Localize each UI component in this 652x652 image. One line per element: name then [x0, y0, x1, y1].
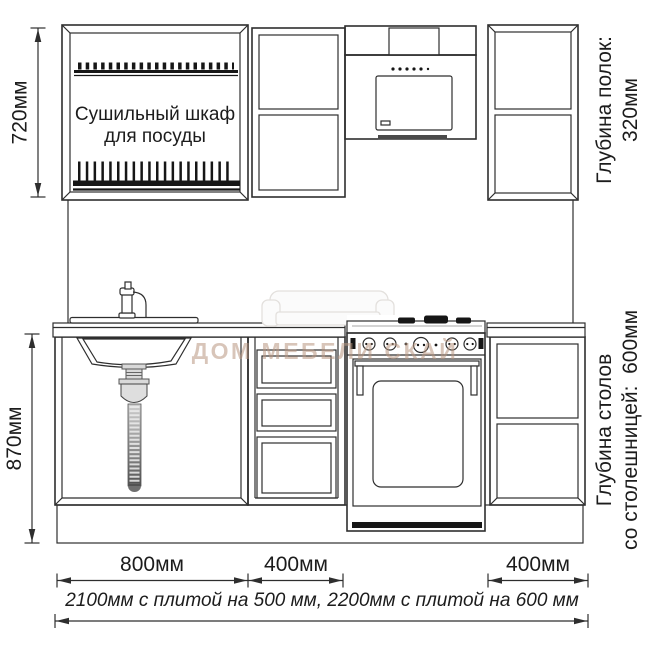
- plinth: [57, 505, 583, 543]
- dim-upper-height-label: 720мм: [9, 81, 32, 145]
- base-cabinet-right: [490, 337, 585, 505]
- right-cabinet-box: [490, 337, 585, 505]
- label-shelf-depth: Глубина полок: 320мм: [593, 36, 642, 184]
- label-counter-depth: Глубина столов со столешницей: 600мм: [593, 310, 642, 550]
- burner: [456, 318, 471, 324]
- drying-cabinet-label-line2: для посуды: [104, 126, 206, 147]
- siphon-pipe: [128, 404, 141, 486]
- counter-depth-line1: Глубина столов: [593, 354, 616, 506]
- dim-width-400-drawers-label: 400мм: [264, 553, 328, 576]
- hood-front-panel: [376, 76, 452, 130]
- burner: [398, 318, 415, 324]
- right-cabinet-shelf-bottom: [497, 424, 578, 498]
- dim-upper-height: 720мм: [9, 28, 46, 197]
- drying-rack-bottom: [73, 171, 240, 190]
- hood-logo: [381, 121, 390, 125]
- stove-base-strip: [352, 522, 482, 528]
- dim-bottom-widths: 800мм 400мм 400мм: [57, 553, 588, 588]
- upper-cabinet-middle: [252, 28, 345, 197]
- countertop-right: [487, 323, 585, 337]
- hood-duct-box: [389, 28, 439, 55]
- siphon: [119, 364, 149, 492]
- burner: [424, 316, 448, 324]
- drawer-3: [257, 437, 336, 498]
- upper-cabinet-right: [488, 25, 578, 200]
- drying-rack-top: [74, 66, 238, 76]
- siphon-bulb: [121, 384, 147, 403]
- hood-cabinet: [345, 26, 476, 140]
- dim-lower-height: 870мм: [3, 334, 40, 543]
- dim-width-400-right-label: 400мм: [506, 553, 570, 576]
- right-cabinet-shelf-top: [497, 344, 578, 418]
- drying-cabinet-label-line1: Сушильный шкаф: [75, 104, 235, 125]
- hood-bottom-strip: [378, 135, 447, 140]
- stove-knob: [464, 338, 476, 350]
- hood-body: [345, 55, 476, 139]
- kitchen-technical-drawing: Сушильный шкаф для посуды: [0, 0, 652, 652]
- dim-total-width-label: 2100мм с плитой на 500 мм, 2200мм с плит…: [64, 590, 579, 611]
- range-hood: [345, 55, 476, 140]
- dim-width-800-label: 800мм: [120, 553, 184, 576]
- plinth-face: [57, 505, 583, 543]
- dim-lower-height-label: 870мм: [3, 407, 26, 471]
- sink-bowl: [77, 338, 191, 368]
- drawing-svg: Сушильный шкаф для посуды: [0, 0, 652, 652]
- faucet: [119, 282, 146, 318]
- shelf-depth-line1: Глубина полок:: [593, 36, 616, 184]
- shelf-depth-line2: 320мм: [619, 78, 642, 142]
- watermark-text: ДОМ МЕБЕЛИ СКАЙ: [192, 337, 459, 364]
- upper-cabinet-drying: Сушильный шкаф для посуды: [62, 25, 248, 200]
- dim-total-width: 2100мм с плитой на 500 мм, 2200мм с плит…: [55, 590, 588, 628]
- counter-depth-line2: со столешницей: 600мм: [619, 310, 642, 550]
